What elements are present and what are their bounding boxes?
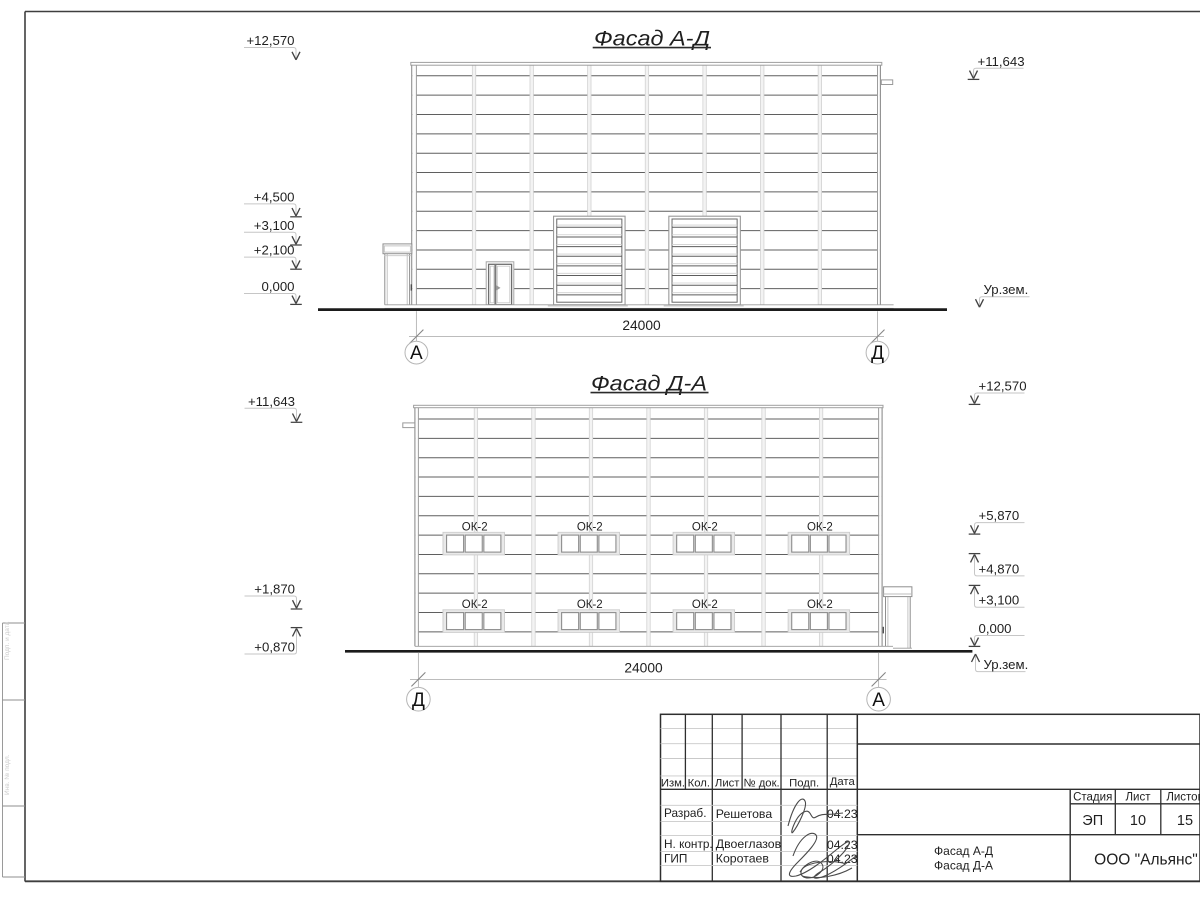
svg-text:Фасад А-Д: Фасад А-Д: [934, 844, 993, 858]
svg-text:А: А: [410, 343, 423, 364]
svg-text:ОК-2: ОК-2: [577, 599, 603, 611]
svg-text:ОК-2: ОК-2: [807, 521, 833, 533]
svg-text:Лист: Лист: [1126, 792, 1152, 804]
svg-text:+0,870: +0,870: [254, 640, 295, 655]
svg-text:+1,870: +1,870: [254, 582, 295, 597]
svg-text:Двоеглазов: Двоеглазов: [716, 837, 781, 851]
svg-text:+12,570: +12,570: [979, 379, 1027, 394]
svg-text:Изм.: Изм.: [661, 777, 685, 789]
svg-text:0,000: 0,000: [261, 279, 294, 294]
svg-text:Дата: Дата: [830, 776, 856, 788]
svg-text:ОК-2: ОК-2: [692, 599, 718, 611]
svg-text:№ док.: № док.: [743, 777, 779, 789]
svg-text:ОК-2: ОК-2: [807, 599, 833, 611]
svg-text:Подп. и дата: Подп. и дата: [4, 621, 11, 660]
svg-text:Листов: Листов: [1166, 792, 1200, 804]
svg-text:А: А: [872, 690, 885, 711]
svg-text:Фасад Д-А: Фасад Д-А: [934, 859, 993, 873]
svg-text:ОК-2: ОК-2: [462, 521, 488, 533]
svg-text:ОК-2: ОК-2: [577, 521, 603, 533]
svg-text:Лист: Лист: [715, 777, 740, 789]
svg-text:Решетова: Решетова: [716, 807, 773, 821]
svg-text:+11,643: +11,643: [978, 54, 1025, 69]
svg-text:24000: 24000: [622, 318, 661, 333]
svg-text:Н. контр.: Н. контр.: [664, 837, 713, 851]
svg-text:Подп.: Подп.: [789, 777, 819, 789]
svg-text:10: 10: [1130, 813, 1146, 829]
svg-text:Коротаев: Коротаев: [716, 852, 769, 866]
svg-text:Кол.: Кол.: [688, 777, 710, 789]
svg-text:ОК-2: ОК-2: [462, 599, 488, 611]
svg-text:Ур.зем.: Ур.зем.: [984, 657, 1029, 672]
svg-text:ООО "Альянс": ООО "Альянс": [1094, 852, 1198, 869]
svg-text:ЭП: ЭП: [1082, 813, 1103, 829]
svg-text:Стадия: Стадия: [1073, 792, 1112, 804]
svg-text:+4,870: +4,870: [979, 561, 1020, 576]
svg-text:ОК-2: ОК-2: [692, 521, 718, 533]
svg-text:+3,100: +3,100: [254, 218, 295, 233]
svg-text:0,000: 0,000: [979, 621, 1012, 636]
svg-text:+2,100: +2,100: [254, 243, 295, 258]
svg-text:+5,870: +5,870: [979, 508, 1020, 523]
svg-text:Ур.зем.: Ур.зем.: [984, 282, 1029, 297]
svg-text:Инв. № подл.: Инв. № подл.: [4, 754, 11, 795]
svg-text:Д: Д: [412, 690, 425, 711]
svg-text:Разраб.: Разраб.: [664, 806, 706, 820]
svg-text:Д: Д: [871, 343, 884, 364]
svg-text:+11,643: +11,643: [248, 394, 295, 409]
svg-text:15: 15: [1177, 813, 1193, 829]
svg-text:24000: 24000: [624, 661, 663, 676]
svg-text:+12,570: +12,570: [246, 33, 294, 48]
svg-text:+4,500: +4,500: [254, 189, 295, 204]
svg-text:+3,100: +3,100: [979, 593, 1020, 608]
svg-text:ГИП: ГИП: [664, 852, 687, 866]
